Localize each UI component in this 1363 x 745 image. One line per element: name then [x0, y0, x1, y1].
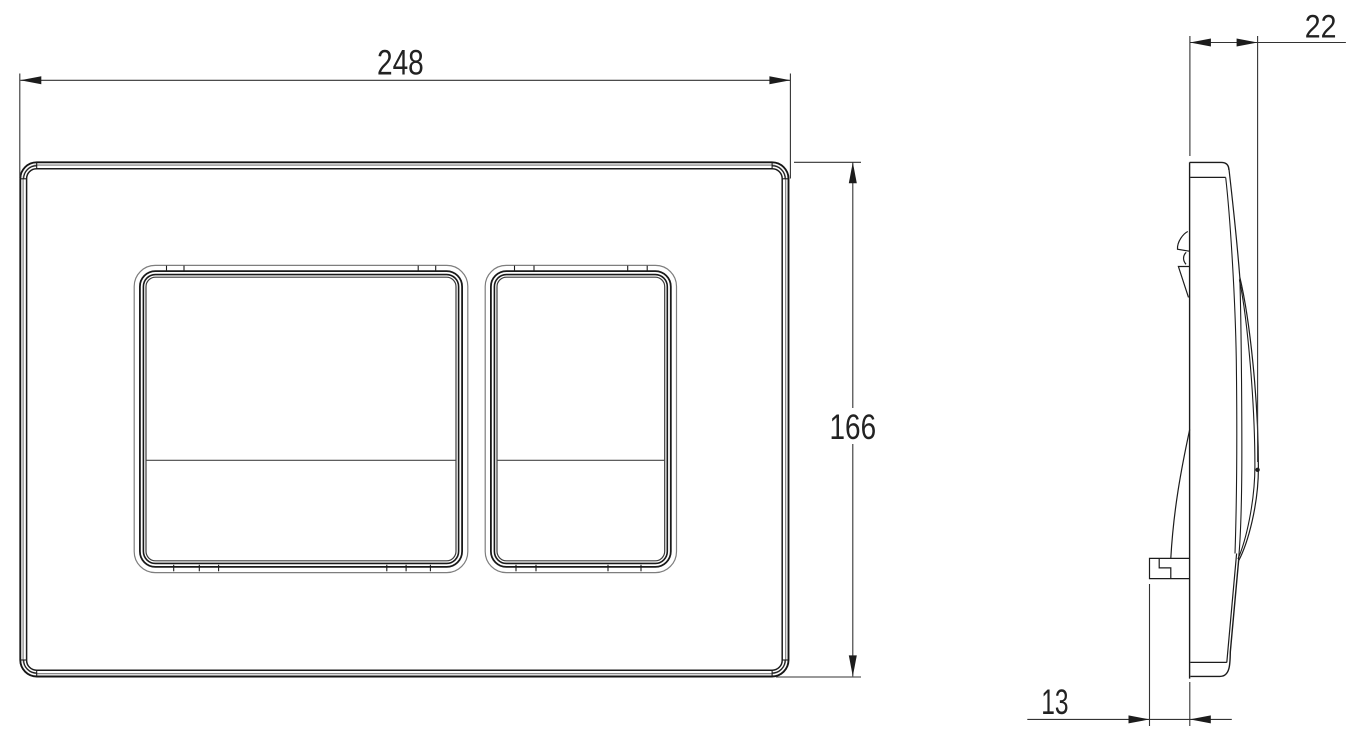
svg-text:13: 13	[1041, 682, 1068, 722]
svg-text:166: 166	[830, 407, 877, 447]
svg-text:22: 22	[1305, 9, 1337, 45]
svg-text:248: 248	[377, 43, 424, 83]
